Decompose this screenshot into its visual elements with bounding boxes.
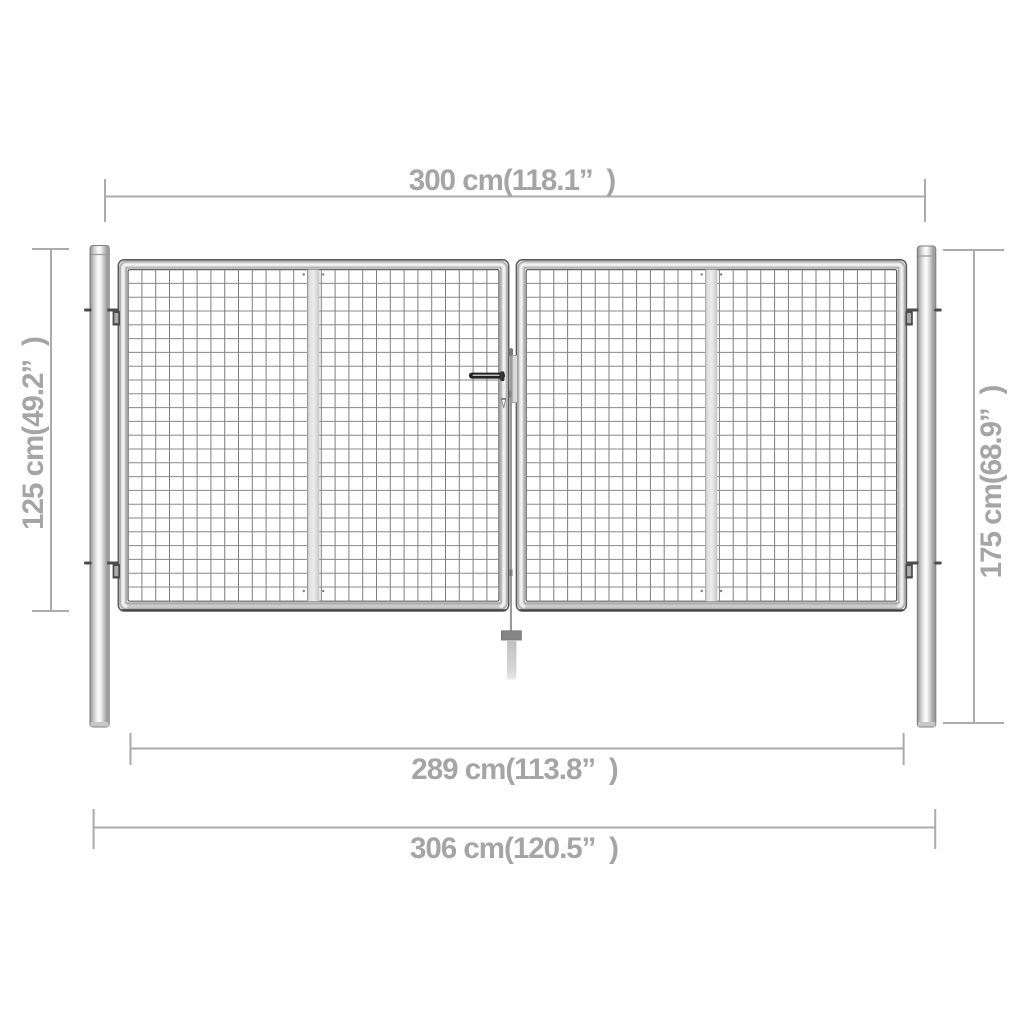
svg-text:125 cm(49.2” ): 125 cm(49.2” ) [17, 337, 50, 530]
svg-text:175 cm(68.9” ): 175 cm(68.9” ) [975, 386, 1008, 579]
svg-text:306 cm(120.5” ): 306 cm(120.5” ) [410, 832, 618, 865]
svg-text:300 cm(118.1” ): 300 cm(118.1” ) [409, 164, 616, 197]
svg-text:289 cm(113.8” ): 289 cm(113.8” ) [411, 753, 618, 786]
